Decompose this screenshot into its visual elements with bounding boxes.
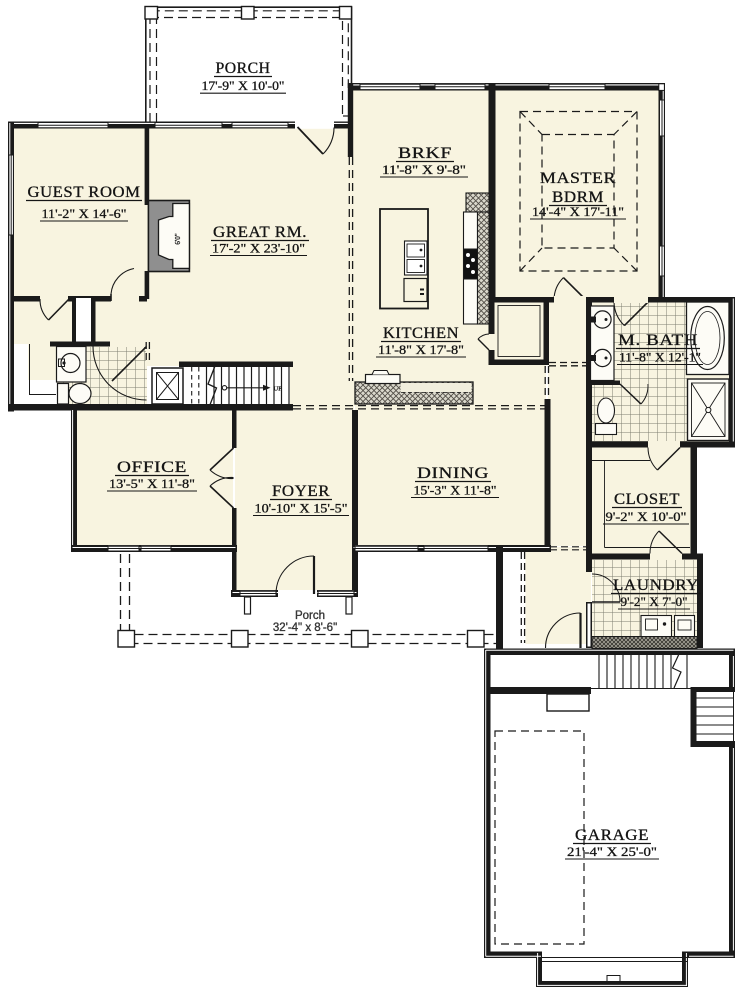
svg-text:32'-4" x 8'-6": 32'-4" x 8'-6" (273, 622, 337, 634)
svg-text:UP: UP (274, 386, 283, 393)
svg-text:Porch: Porch (295, 610, 325, 622)
svg-text:10'-10" X 15'-5": 10'-10" X 15'-5" (255, 502, 348, 516)
svg-text:11'-8" X 17'-8": 11'-8" X 17'-8" (378, 343, 464, 357)
svg-text:LAUNDRY: LAUNDRY (613, 577, 699, 594)
svg-text:BRKF: BRKF (398, 145, 452, 162)
svg-text:17'-9" X 10'-0": 17'-9" X 10'-0" (202, 79, 285, 93)
svg-text:GARAGE: GARAGE (575, 827, 649, 844)
svg-text:FOYER: FOYER (272, 483, 330, 500)
svg-text:M. BATH: M. BATH (618, 332, 698, 349)
svg-text:21'-4" X 25'-0": 21'-4" X 25'-0" (567, 845, 657, 859)
svg-text:CLOSET: CLOSET (614, 491, 680, 508)
svg-text:9'-2" X 7'-0": 9'-2" X 7'-0" (621, 595, 688, 609)
svg-text:9'-2" X 10'-0": 9'-2" X 10'-0" (606, 510, 687, 524)
svg-text:KITCHEN: KITCHEN (383, 325, 459, 342)
svg-text:PORCH: PORCH (216, 60, 271, 77)
svg-text:6'0": 6'0" (174, 233, 182, 244)
svg-text:15'-3" X 11'-8": 15'-3" X 11'-8" (414, 484, 497, 498)
svg-text:DINING: DINING (417, 465, 489, 482)
svg-text:GREAT RM.: GREAT RM. (213, 224, 307, 241)
svg-text:13'-5" X 11'-8": 13'-5" X 11'-8" (109, 477, 195, 491)
svg-text:11'-8" X 9'-8": 11'-8" X 9'-8" (382, 163, 466, 177)
svg-text:11'-2" X 14'-6": 11'-2" X 14'-6" (42, 207, 127, 221)
svg-text:BDRM: BDRM (552, 189, 604, 206)
svg-text:17'-2" X 23'-10": 17'-2" X 23'-10" (212, 242, 305, 256)
svg-text:OFFICE: OFFICE (117, 459, 187, 476)
svg-text:14'-4" X 17'-11": 14'-4" X 17'-11" (532, 205, 624, 219)
svg-text:11'-8" X 12'-1": 11'-8" X 12'-1" (619, 351, 701, 365)
svg-text:MASTER: MASTER (540, 170, 616, 187)
svg-text:GUEST ROOM: GUEST ROOM (28, 184, 141, 201)
